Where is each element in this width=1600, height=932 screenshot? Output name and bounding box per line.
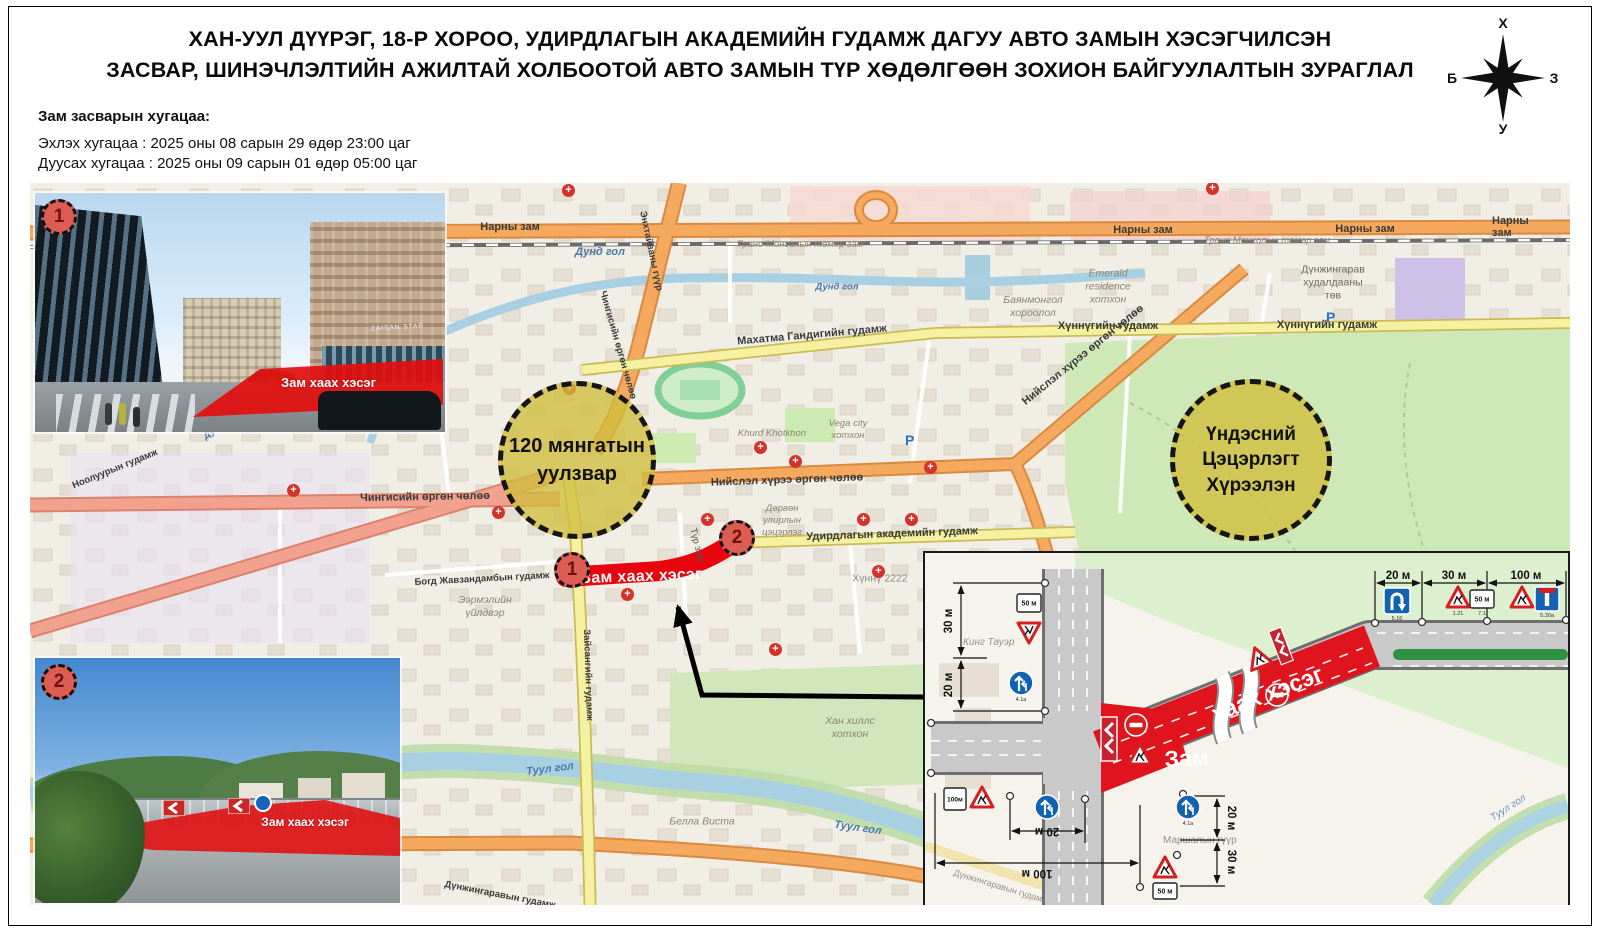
photo1-car: [318, 391, 441, 429]
compass-north-label: Х: [1498, 16, 1508, 31]
place-label-four-seasons: Дөрвөн улирлын цэцэрлэг: [762, 503, 802, 539]
river-label-dundgol-2: Дунд гол: [815, 282, 858, 293]
pharmacy-cross-icon: +: [872, 565, 885, 578]
sign-code: 5.16: [1392, 616, 1403, 622]
pharmacy-cross-icon: +: [905, 513, 918, 526]
dim-label: 20 м: [1386, 570, 1411, 582]
svg-text:50 м: 50 м: [1022, 601, 1037, 608]
sign-code: 4.1а: [1183, 821, 1195, 827]
photo1-caption: Зам хаах хэсэг: [281, 375, 376, 390]
svg-text:50 м: 50 м: [1475, 597, 1490, 604]
place-label-vega: Vega city хотхон: [829, 418, 868, 442]
title-line-2: ЗАСВАР, ШИНЭЧЛЭЛТИЙН АЖИЛТАЙ ХОЛБООТОЙ А…: [100, 55, 1420, 86]
sign-code: 4.1а: [1016, 697, 1028, 703]
zone-national-park: Үндэсний Цэцэрлэгт Хүрээлэн: [1170, 379, 1332, 541]
closure-marker-2: 2: [719, 520, 755, 556]
photo1-marker: 1: [41, 199, 77, 235]
place-label-eermel: Ээрмэлийн үйлдвэр: [458, 594, 512, 620]
dim-label: 30 м: [1442, 570, 1467, 582]
pharmacy-cross-icon: +: [492, 506, 505, 519]
place-label-khurd: Khurd Khotkhon: [738, 428, 806, 440]
schedule-start: Эхлэх хугацаа : 2025 оны 08 сарын 29 өдө…: [38, 135, 417, 152]
zone-junction-120: 120 мянгатын уулзвар: [498, 381, 656, 539]
distance-plate-100m: 100м: [944, 788, 966, 810]
street-label-narny-2: Нарны зам: [1113, 224, 1172, 236]
photo-inset-1: ZAISAN STAR Зам хаах хэсэг 1: [35, 193, 445, 432]
pharmacy-cross-icon: +: [701, 513, 714, 526]
mandatory-direction-sign-icon: [1176, 795, 1200, 819]
compass-rose: Х У Б З: [1448, 16, 1558, 134]
dim-label: 30 м: [943, 609, 955, 634]
pharmacy-cross-icon: +: [769, 643, 782, 656]
deadend-sign-icon: [1535, 587, 1559, 611]
distance-plate-50m: 50 м: [1470, 590, 1494, 608]
traffic-diagram: Кинг Тауэр Маршалын гүүр Туул гол Дүнжин…: [925, 553, 1568, 905]
compass-south-label: У: [1499, 121, 1508, 134]
dim-label: 20 м: [943, 673, 955, 698]
pharmacy-cross-icon: +: [924, 461, 937, 474]
sign-code: 7.1: [1478, 611, 1486, 617]
railway-label-1: Транс-Монголын төмөр зам: [737, 239, 864, 251]
chevron-board-icon: [1101, 717, 1117, 761]
pharmacy-cross-icon: +: [754, 441, 767, 454]
compass-east-label: З: [1550, 70, 1558, 86]
schedule-heading: Зам засварын хугацаа:: [38, 108, 417, 125]
place-label-bayanmongol: Баянмонгол хороолол: [1003, 294, 1062, 320]
street-label-narny-3: Нарны зам: [1335, 223, 1394, 235]
no-entry-sign-icon: [1125, 714, 1147, 736]
dim-label: 20 м: [1225, 806, 1237, 831]
traffic-diagram-panel: Кинг Тауэр Маршалын гүүр Туул гол Дүнжин…: [923, 551, 1570, 905]
city-map: Нарны зам Нарны зам Нарны зам Нарны зам …: [30, 183, 1570, 905]
place-label-khan-hills: Хан хиллс хотхон: [825, 715, 875, 741]
schedule-block: Зам засварын хугацаа: Эхлэх хугацаа : 20…: [38, 108, 417, 172]
pharmacy-cross-icon: +: [621, 588, 634, 601]
parking-icon: P: [1326, 309, 1335, 325]
photo2-marker: 2: [41, 664, 77, 700]
page-title: ХАН-УУЛ ДҮҮРЭГ, 18-Р ХОРОО, УДИРДЛАГЫН А…: [100, 24, 1420, 86]
dim-label: 20 м: [1035, 825, 1060, 837]
dim-label: 30 м: [1225, 850, 1237, 875]
photo1-pedestrian-1: [105, 403, 112, 425]
place-label-emerald: Emerald residence хотхон: [1085, 267, 1131, 306]
photo-inset-2: Зам хаах хэсэг 2: [35, 658, 400, 903]
compass-west-label: Б: [1448, 70, 1457, 86]
street-label-chinggis: Чингисийн өргөн чөлөө: [360, 490, 490, 504]
sign-code: 5.30а: [1540, 613, 1555, 619]
dim-label: 100 м: [1511, 570, 1542, 582]
pharmacy-cross-icon: +: [857, 513, 870, 526]
street-label-narny-4: Нарны зам: [1492, 215, 1544, 239]
pharmacy-cross-icon: +: [789, 455, 802, 468]
svg-text:50 м: 50 м: [1158, 889, 1173, 896]
compass-icon: Х У Б З: [1448, 16, 1558, 134]
distance-plate-50m: 50 м: [1153, 883, 1177, 899]
pharmacy-cross-icon: +: [562, 184, 575, 197]
place-label-mall: Дүнжингарав худалдааны төв: [1301, 263, 1365, 302]
mandatory-direction-sign-icon: [1035, 795, 1059, 819]
parking-icon: P: [905, 432, 914, 448]
street-label-narny-1: Нарны зам: [480, 221, 539, 233]
closure-marker-1: 1: [554, 552, 590, 588]
mandatory-direction-sign-icon: [1009, 671, 1033, 695]
photo2-blue-sign: [254, 794, 272, 812]
sign-code: 1.21: [1453, 611, 1464, 617]
schedule-end: Дуусах хугацаа : 2025 оны 09 сарын 01 өд…: [38, 155, 417, 172]
diagram-label-king-tower: Кинг Тауэр: [963, 637, 1015, 648]
river-label-dundgol-1: Дунд гол: [575, 246, 625, 258]
uturn-sign-icon: [1384, 588, 1410, 614]
distance-plate-50m: 50 м: [1017, 594, 1041, 612]
svg-text:100м: 100м: [947, 797, 963, 804]
place-label-bella-vista: Белла Виста: [669, 815, 735, 828]
photo2-chevron-sign-2: [228, 798, 250, 814]
diagram-closure-word1: Зам: [1164, 744, 1210, 772]
railway-label-2: Транс-Монголын төмөр зам: [1204, 235, 1331, 247]
photo1-pedestrian-3: [133, 407, 140, 427]
dim-label: 100 м: [1022, 867, 1053, 879]
photo2-chevron-sign-1: [163, 800, 185, 816]
title-line-1: ХАН-УУЛ ДҮҮРЭГ, 18-Р ХОРОО, УДИРДЛАГЫН А…: [100, 24, 1420, 55]
photo1-pedestrian-2: [119, 403, 126, 425]
pharmacy-cross-icon: +: [287, 484, 300, 497]
photo2-caption: Зам хаах хэсэг: [261, 815, 349, 829]
